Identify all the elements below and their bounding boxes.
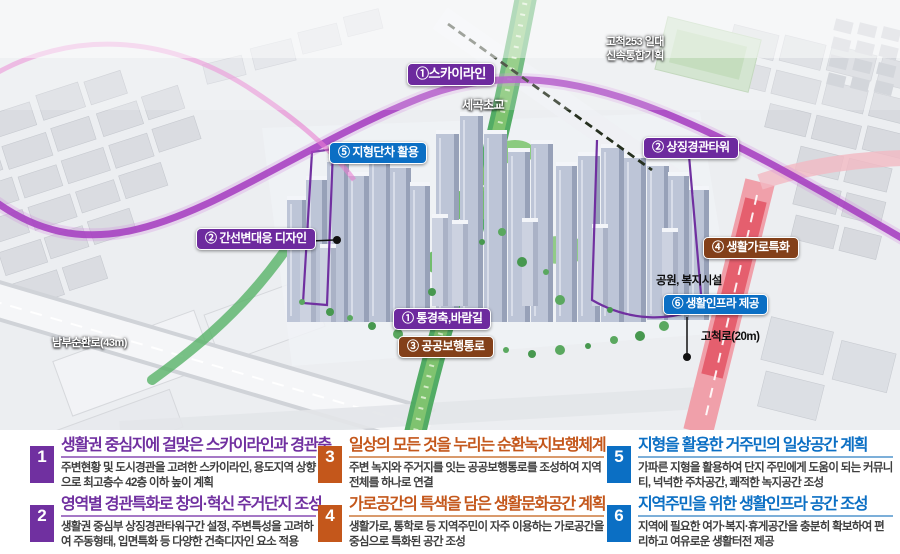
nambu-road-label: 남부순환로(43m) — [52, 337, 127, 351]
legend-number-1: 1 — [30, 446, 54, 483]
area-note-line1: 고척253 일대 — [583, 36, 687, 50]
park-facility-label: 공원, 복지시설 — [656, 274, 722, 288]
legend-number-2: 2 — [30, 505, 54, 542]
callout-terrace-use: ⑤ 지형단차 활용 — [329, 142, 427, 164]
callout-landmark-tower: ② 상징경관타워 — [643, 137, 739, 159]
legend-section: 1 생활권 중심지에 걸맞은 스카이라인과 경관축 주변현황 및 도시경관을 고… — [0, 430, 900, 554]
legend-block-3: 3 일상의 모든 것을 누리는 순환녹지보행체계 주변 녹지와 주거지를 잇는 … — [318, 431, 604, 491]
callout-skyline: ①스카이라인 — [407, 63, 495, 86]
legend-block-1: 1 생활권 중심지에 걸맞은 스카이라인과 경관축 주변현황 및 도시경관을 고… — [30, 431, 316, 491]
legend-body-3: 주변 녹지와 주거지를 잇는 공공보행통로를 조성하여 지역 전체를 하나로 연… — [349, 461, 604, 491]
callout-view-axis: ① 통경축,바람길 — [393, 308, 491, 330]
legend-number-5: 5 — [607, 446, 631, 483]
haze-overlay-2 — [0, 0, 900, 110]
gocheok-ro-label: 고척로(20m) — [701, 330, 759, 344]
legend-title-6: 지역주민을 위한 생활인프라 공간 조성 — [638, 490, 893, 517]
legend-block-4: 4 가로공간의 특색을 담은 생활문화공간 계획 생활가로, 통학로 등 지역주… — [318, 490, 604, 550]
area-note: 고척253 일대 신속통합기획 — [583, 36, 687, 64]
legend-title-2: 영역별 경관특화로 창의·혁신 주거단지 조성 — [61, 490, 316, 517]
site-rendering: 고척253 일대 신속통합기획 세곡초교 공원, 복지시설 고척로(20m) 남… — [0, 0, 900, 430]
legend-block-2: 2 영역별 경관특화로 창의·혁신 주거단지 조성 생활권 중심부 상징경관타워… — [30, 490, 316, 550]
legend-title-3: 일상의 모든 것을 누리는 순환녹지보행체계 — [349, 431, 604, 458]
legend-block-6: 6 지역주민을 위한 생활인프라 공간 조성 지역에 필요한 여가·복지·휴게공… — [607, 490, 893, 550]
school-label: 세곡초교 — [462, 98, 504, 113]
callout-public-walkway: ③ 공공보행통로 — [398, 336, 494, 358]
legend-body-5: 가파른 지형을 활용하여 단지 주민에게 도움이 되는 커뮤니티, 넉넉한 주차… — [638, 461, 893, 491]
legend-body-1: 주변현황 및 도시경관을 고려한 스카이라인, 용도지역 상향으로 최고층수 4… — [61, 461, 316, 491]
infographic: 고척253 일대 신속통합기획 세곡초교 공원, 복지시설 고척로(20m) 남… — [0, 0, 900, 554]
legend-body-6: 지역에 필요한 여가·복지·휴게공간을 충분히 확보하여 편리하고 여유로운 생… — [638, 520, 893, 550]
legend-number-3: 3 — [318, 446, 342, 483]
callout-living-street: ④ 생활가로특화 — [703, 237, 799, 259]
legend-block-5: 5 지형을 활용한 거주민의 일상공간 계획 가파른 지형을 활용하여 단지 주… — [607, 431, 893, 491]
callout-living-infra: ⑥ 생활인프라 제공 — [663, 294, 768, 315]
legend-title-4: 가로공간의 특색을 담은 생활문화공간 계획 — [349, 490, 604, 517]
area-note-line2: 신속통합기획 — [583, 50, 687, 64]
legend-title-5: 지형을 활용한 거주민의 일상공간 계획 — [638, 431, 893, 458]
legend-body-2: 생활권 중심부 상징경관타워구간 설정, 주변특성을 고려하여 주동형태, 입면… — [61, 520, 316, 550]
legend-number-6: 6 — [607, 505, 631, 542]
callout-arterial-design: ② 간선변대응 디자인 — [196, 228, 316, 250]
legend-body-4: 생활가로, 통학로 등 지역주민이 자주 이용하는 가로공간을 중심으로 특화된… — [349, 520, 604, 550]
legend-number-4: 4 — [318, 505, 342, 542]
legend-title-1: 생활권 중심지에 걸맞은 스카이라인과 경관축 — [61, 431, 316, 458]
